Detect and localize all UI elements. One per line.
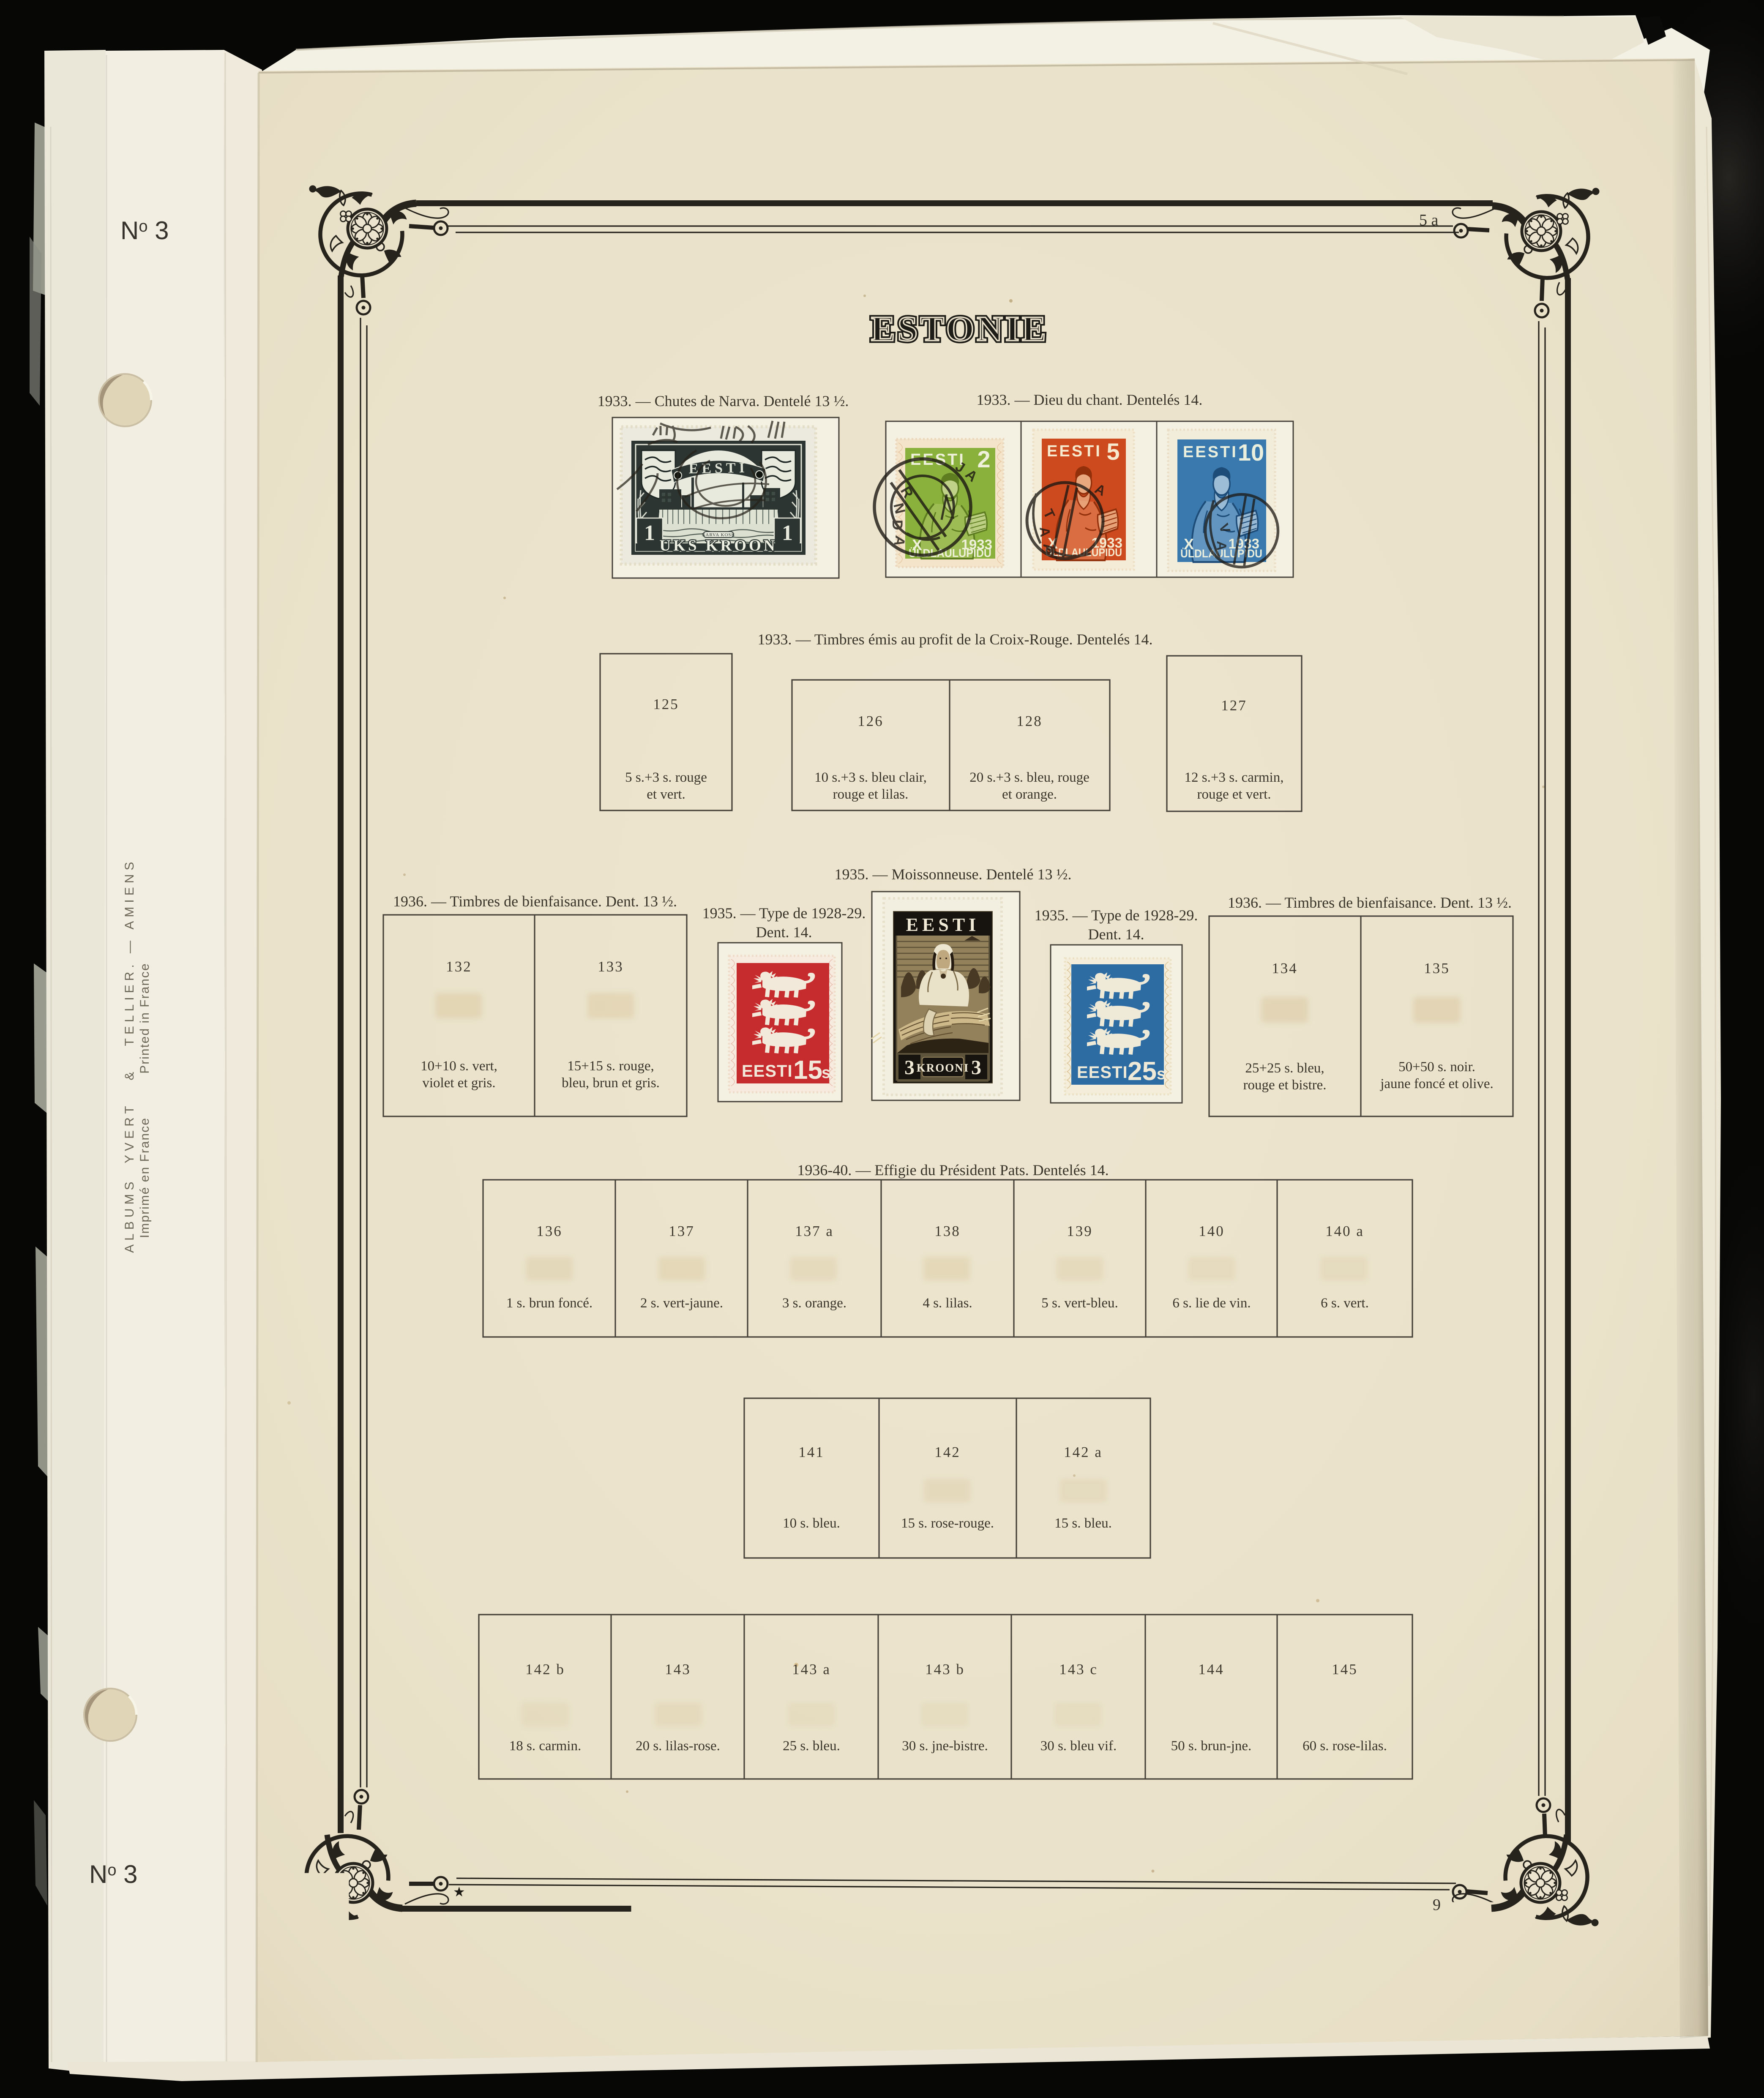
svg-text:KROONI: KROONI [917,1061,969,1074]
svg-text:127: 127 [1221,697,1247,714]
svg-text:144: 144 [1198,1661,1224,1678]
svg-text:EESTI: EESTI [906,914,980,935]
svg-text:3 s. orange.: 3 s. orange. [782,1296,847,1311]
svg-text:138: 138 [934,1223,961,1239]
svg-text:134: 134 [1272,960,1298,977]
svg-text:125: 125 [653,696,679,712]
svg-text:142 a: 142 a [1064,1444,1103,1460]
svg-text:132: 132 [446,958,472,975]
svg-text:rouge et bistre.: rouge et bistre. [1243,1078,1326,1093]
svg-text:violet et gris.: violet et gris. [422,1075,495,1091]
svg-text:1936. — Timbres de bienfaisanc: 1936. — Timbres de bienfaisance. Dent. 1… [393,893,677,910]
svg-text:50 s. brun-jne.: 50 s. brun-jne. [1171,1738,1252,1754]
svg-text:10: 10 [1238,439,1264,466]
svg-text:EESTI: EESTI [742,1062,793,1080]
svg-text:et vert.: et vert. [647,787,685,802]
svg-text:bleu, brun et gris.: bleu, brun et gris. [562,1075,660,1091]
svg-text:15 s. rose-rouge.: 15 s. rose-rouge. [901,1516,994,1531]
svg-text:143 c: 143 c [1059,1661,1098,1678]
svg-text:1: 1 [782,521,793,545]
svg-text:60 s. rose-lilas.: 60 s. rose-lilas. [1303,1738,1387,1754]
svg-text:136: 136 [536,1223,563,1239]
svg-text:4 s. lilas.: 4 s. lilas. [923,1296,972,1311]
svg-text:5 a: 5 a [1419,211,1439,229]
svg-text:1935. — Type de 1928-29.: 1935. — Type de 1928-29. [702,905,866,922]
svg-text:UKS KROON: UKS KROON [659,537,777,554]
svg-text:142 b: 142 b [525,1661,565,1678]
svg-text:5 s. vert-bleu.: 5 s. vert-bleu. [1041,1296,1118,1311]
svg-text:s: s [1157,1065,1166,1083]
svg-text:143: 143 [665,1661,691,1678]
svg-text:A: A [1214,541,1229,551]
svg-text:Dent. 14.: Dent. 14. [1088,926,1144,943]
svg-text:133: 133 [598,958,624,975]
svg-text:1933. — Dieu du chant. Dentelé: 1933. — Dieu du chant. Dentelés 14. [977,391,1203,408]
svg-text:rouge et vert.: rouge et vert. [1197,787,1271,802]
svg-text:1935. — Type de 1928-29.: 1935. — Type de 1928-29. [1035,907,1198,924]
svg-text:3: 3 [904,1056,915,1079]
svg-text:A: A [1037,526,1053,538]
svg-text:12 s.+3 s. carmin,: 12 s.+3 s. carmin, [1185,770,1284,785]
svg-text:15+15 s. rouge,: 15+15 s. rouge, [567,1059,654,1074]
svg-text:1935. — Moissonneuse. Dentelé: 1935. — Moissonneuse. Dentelé 13 ½. [835,866,1072,883]
svg-text:30 s. jne-bistre.: 30 s. jne-bistre. [902,1738,988,1754]
svg-text:10 s.+3 s. bleu clair,: 10 s.+3 s. bleu clair, [814,770,927,785]
svg-text:143 b: 143 b [925,1661,965,1678]
svg-text:50+50 s. noir.: 50+50 s. noir. [1398,1059,1475,1075]
svg-text:s: s [822,1064,830,1082]
svg-text:25: 25 [1128,1057,1157,1086]
svg-text:9: 9 [1433,1896,1441,1914]
svg-text:25+25 s. bleu,: 25+25 s. bleu, [1245,1061,1324,1076]
svg-text:20 s.+3 s. bleu, rouge: 20 s.+3 s. bleu, rouge [969,770,1090,785]
svg-text:EESTI: EESTI [1077,1063,1128,1082]
svg-text:145: 145 [1332,1661,1358,1678]
svg-text:20 s. lilas-rose.: 20 s. lilas-rose. [636,1738,720,1754]
svg-text:140: 140 [1199,1223,1225,1239]
svg-text:142: 142 [934,1444,961,1460]
svg-text:rouge et lilas.: rouge et lilas. [833,787,909,802]
svg-text:140 a: 140 a [1325,1223,1364,1239]
svg-text:128: 128 [1016,713,1043,729]
svg-text:6 s. lie de vin.: 6 s. lie de vin. [1172,1296,1251,1311]
svg-text:25 s. bleu.: 25 s. bleu. [783,1738,840,1754]
svg-text:143 a: 143 a [792,1661,831,1678]
svg-text:126: 126 [857,713,884,729]
svg-text:10 s. bleu.: 10 s. bleu. [783,1516,840,1531]
svg-text:ESTONIE: ESTONIE [871,309,1049,349]
svg-text:Dent. 14.: Dent. 14. [756,924,812,941]
svg-text:et orange.: et orange. [1002,787,1057,802]
svg-text:1933. — Timbres émis au profit: 1933. — Timbres émis au profit de la Cro… [758,631,1153,648]
svg-text:1 s. brun foncé.: 1 s. brun foncé. [506,1296,593,1311]
svg-text:jaune foncé et olive.: jaune foncé et olive. [1380,1076,1494,1091]
svg-text:137: 137 [669,1223,695,1239]
svg-text:18 s. carmin.: 18 s. carmin. [509,1738,581,1754]
svg-text:6 s. vert.: 6 s. vert. [1321,1296,1369,1311]
svg-text:15 s. bleu.: 15 s. bleu. [1054,1516,1112,1531]
svg-text:135: 135 [1424,960,1450,977]
svg-text:1: 1 [644,521,655,545]
svg-text:141: 141 [798,1444,825,1460]
svg-text:137 a: 137 a [795,1223,834,1239]
svg-text:1933. — Chutes de Narva. Dente: 1933. — Chutes de Narva. Dentelé 13 ½. [598,393,849,409]
svg-text:★: ★ [453,1884,465,1899]
svg-text:10+10 s. vert,: 10+10 s. vert, [421,1059,497,1074]
svg-text:139: 139 [1067,1223,1093,1239]
svg-text:EESTI: EESTI [1047,442,1102,460]
svg-text:5 s.+3 s. rouge: 5 s.+3 s. rouge [625,770,707,785]
svg-text:EESTI: EESTI [1183,443,1238,461]
svg-text:ALBUMS YVERT & TELLIER. —: ALBUMS YVERT & TELLIER. — AMIENS [123,858,137,1253]
svg-text:1936-40. — Effigie du Présiden: 1936-40. — Effigie du Président Pats. De… [797,1162,1109,1179]
svg-text:1936. — Timbres de bienfaisanc: 1936. — Timbres de bienfaisance. Dent. 1… [1228,894,1512,911]
svg-text:D: D [889,520,905,530]
svg-text:5: 5 [1106,438,1120,465]
svg-text:Imprimé en France Pri: Imprimé en France Printed in France [138,963,152,1238]
svg-text:3: 3 [971,1056,981,1079]
svg-text:2 s. vert-jaune.: 2 s. vert-jaune. [640,1296,723,1311]
svg-text:15: 15 [793,1056,822,1085]
svg-text:30 s. bleu vif.: 30 s. bleu vif. [1040,1738,1117,1754]
svg-text:ÜLDLAULUPIDU: ÜLDLAULUPIDU [909,547,991,559]
svg-text:2: 2 [977,446,990,472]
